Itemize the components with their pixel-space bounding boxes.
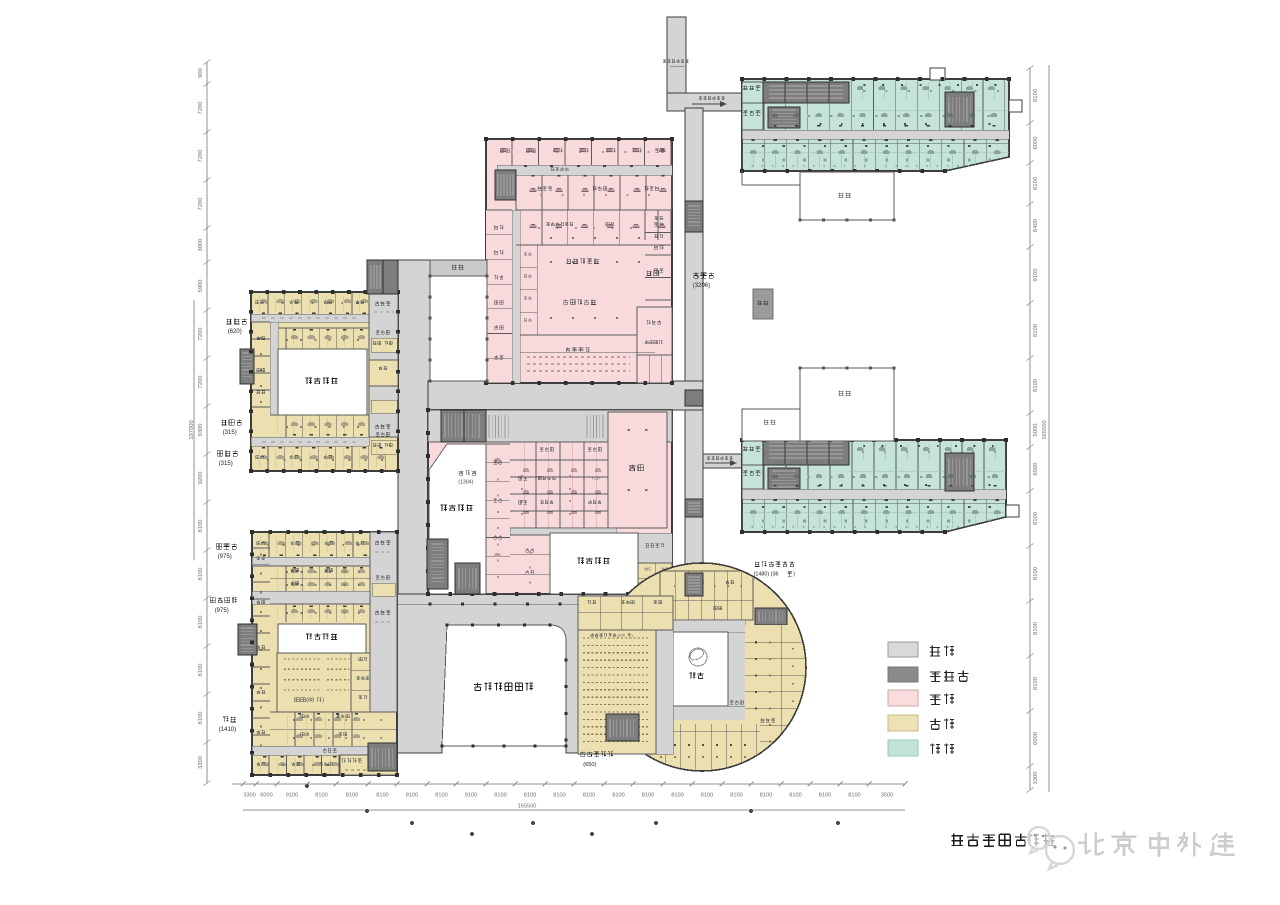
svg-text:9100: 9100 xyxy=(286,793,298,799)
svg-text:(975): (975) xyxy=(215,608,229,614)
svg-text:6500: 6500 xyxy=(1033,463,1039,476)
svg-text:3300: 3300 xyxy=(1033,772,1039,785)
svg-text:8100: 8100 xyxy=(671,793,683,799)
svg-text:8100: 8100 xyxy=(1033,324,1039,337)
svg-text:9200: 9200 xyxy=(198,472,204,485)
svg-text:8100: 8100 xyxy=(198,616,204,629)
svg-text:5000: 5000 xyxy=(1033,424,1039,437)
svg-text:900: 900 xyxy=(198,68,204,78)
svg-text:(620): (620) xyxy=(228,329,242,335)
svg-text:8100: 8100 xyxy=(198,520,204,533)
svg-text:(100: (100 xyxy=(617,632,626,637)
svg-text:7200: 7200 xyxy=(198,150,204,163)
svg-text:165500: 165500 xyxy=(1042,420,1048,439)
svg-text:6000: 6000 xyxy=(1033,732,1039,745)
svg-text:8100: 8100 xyxy=(1033,567,1039,580)
svg-text:(975): (975) xyxy=(218,554,232,560)
svg-text:197000: 197000 xyxy=(189,420,195,439)
svg-text:8100: 8100 xyxy=(819,793,831,799)
svg-text:8100: 8100 xyxy=(524,793,536,799)
svg-text:(650): (650) xyxy=(583,762,596,768)
svg-text:8100: 8100 xyxy=(435,793,447,799)
svg-text:9100: 9100 xyxy=(1033,269,1039,282)
svg-text:6400: 6400 xyxy=(1033,219,1039,232)
svg-text:3300: 3300 xyxy=(243,793,255,799)
svg-text:9300: 9300 xyxy=(198,424,204,437)
svg-text:(88: (88 xyxy=(306,698,314,704)
svg-text:8100: 8100 xyxy=(376,793,388,799)
svg-text:7200: 7200 xyxy=(198,102,204,115)
svg-text:(1410): (1410) xyxy=(219,727,236,733)
svg-text:7200: 7200 xyxy=(198,376,204,389)
svg-text:8100: 8100 xyxy=(198,664,204,677)
svg-text:3000: 3000 xyxy=(198,239,204,252)
svg-text:8100: 8100 xyxy=(315,793,327,799)
svg-text:8100: 8100 xyxy=(730,793,742,799)
svg-text:8100: 8100 xyxy=(1033,512,1039,525)
svg-text:9100: 9100 xyxy=(465,793,477,799)
svg-text:): ) xyxy=(322,698,324,704)
svg-text:7200: 7200 xyxy=(198,328,204,341)
svg-text:8100: 8100 xyxy=(789,793,801,799)
svg-text:8100: 8100 xyxy=(494,793,506,799)
svg-text:TCD: TCD xyxy=(591,476,600,481)
svg-text:165500: 165500 xyxy=(518,804,537,810)
svg-text:5900: 5900 xyxy=(198,280,204,293)
svg-text:6000: 6000 xyxy=(1033,137,1039,150)
svg-text:(1480) (36: (1480) (36 xyxy=(754,572,779,578)
svg-text:3500: 3500 xyxy=(881,793,893,799)
svg-text:8100: 8100 xyxy=(612,793,624,799)
svg-text:8100: 8100 xyxy=(642,793,654,799)
svg-text:8100: 8100 xyxy=(760,793,772,799)
svg-text:8100: 8100 xyxy=(848,793,860,799)
svg-text:(3206): (3206) xyxy=(693,283,710,289)
svg-text:(1304): (1304) xyxy=(458,480,473,486)
svg-text:(315): (315) xyxy=(223,430,237,436)
svg-text:8100: 8100 xyxy=(346,793,358,799)
svg-text:8100: 8100 xyxy=(1033,89,1039,102)
svg-text:6100: 6100 xyxy=(1033,177,1039,190)
svg-text:8100: 8100 xyxy=(583,793,595,799)
svg-text:8100: 8100 xyxy=(701,793,713,799)
svg-text:WC: WC xyxy=(644,567,651,572)
svg-text:6000: 6000 xyxy=(260,793,272,799)
svg-text:(315): (315) xyxy=(219,461,233,467)
svg-text:7200: 7200 xyxy=(198,198,204,211)
svg-text:8100: 8100 xyxy=(1033,677,1039,690)
svg-text:3300: 3300 xyxy=(198,756,204,769)
svg-text:8100: 8100 xyxy=(198,712,204,725)
svg-text:8100: 8100 xyxy=(198,568,204,581)
svg-text:): ) xyxy=(793,572,795,578)
svg-text:8100: 8100 xyxy=(1033,379,1039,392)
svg-text:8100: 8100 xyxy=(406,793,418,799)
svg-text:8100: 8100 xyxy=(553,793,565,799)
svg-text:8100: 8100 xyxy=(1033,622,1039,635)
